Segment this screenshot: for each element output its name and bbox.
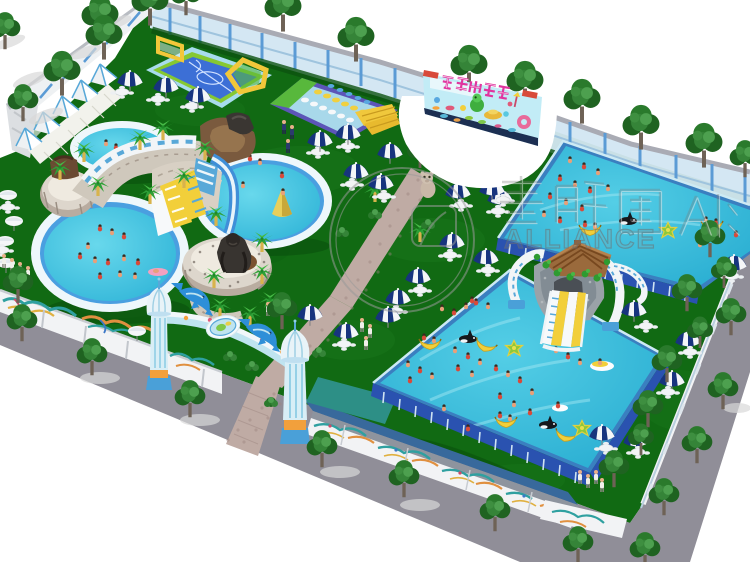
svg-text:ALLIANCE: ALLIANCE [504, 224, 657, 254]
